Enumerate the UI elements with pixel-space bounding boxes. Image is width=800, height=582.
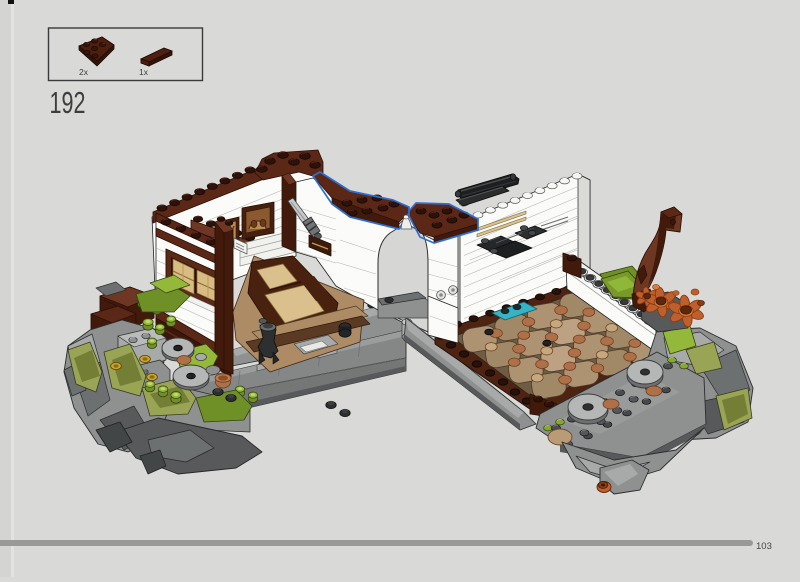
svg-text:1x: 1x <box>139 67 149 77</box>
svg-text:192: 192 <box>50 85 86 120</box>
svg-text:2x: 2x <box>79 67 89 77</box>
svg-text:103: 103 <box>756 541 772 552</box>
